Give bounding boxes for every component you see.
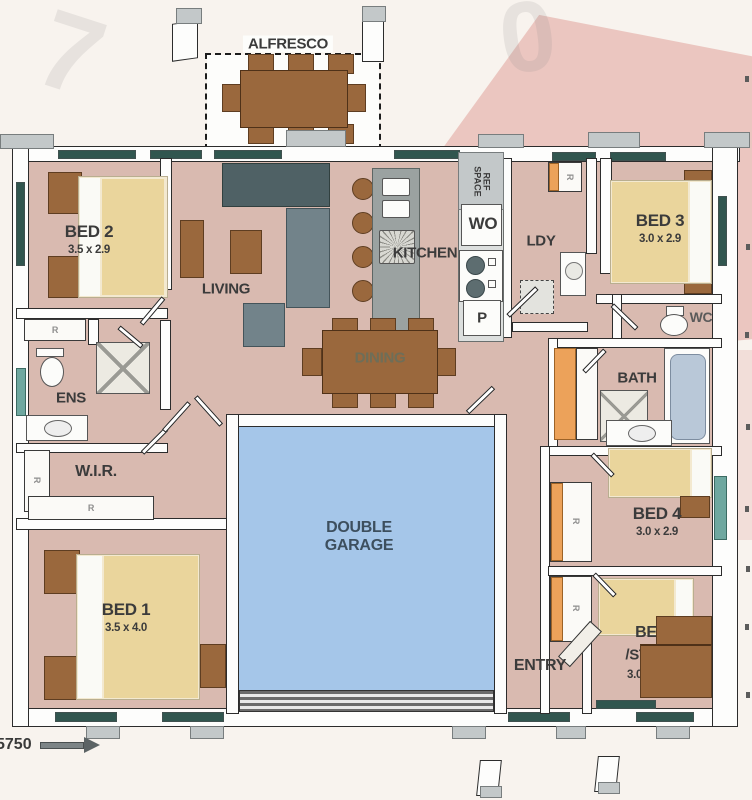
bed4-nightstand <box>680 496 710 518</box>
ens-basin <box>44 420 72 437</box>
window-bed4-right <box>714 476 727 540</box>
window-bed3-top <box>610 152 666 161</box>
scan-dot <box>745 506 749 512</box>
cooktop-knob <box>488 258 496 266</box>
wc-label: WC <box>690 309 713 325</box>
wall-ens-east <box>160 320 171 410</box>
bed2-nightstand <box>48 256 82 298</box>
wir-label: W.I.R. <box>75 463 117 481</box>
kitchen-ref-space-label-wrap: REF SPACE <box>458 156 504 206</box>
scan-dot <box>745 332 749 338</box>
bed3-dims: 3.0 x 2.9 <box>639 233 681 245</box>
living-cabinet <box>180 220 204 278</box>
scan-dot <box>745 624 749 630</box>
dining-chair <box>302 348 322 376</box>
bed1-label: BED 1 <box>102 600 151 620</box>
bath-linen-cupboard <box>554 348 576 440</box>
ldy-label: LDY <box>526 233 555 250</box>
bed5-desk-return <box>640 644 712 698</box>
scan-dot <box>746 244 750 250</box>
living-coffee-table <box>230 230 262 274</box>
window-ens-left <box>16 368 26 416</box>
alfresco-post-cap <box>176 8 202 24</box>
window-sill <box>556 726 586 739</box>
kitchen-label: KITCHEN <box>393 245 458 262</box>
garage-label-line1: DOUBLE <box>326 519 392 537</box>
window-head <box>0 134 54 149</box>
dimension-arrow-shaft <box>40 742 84 749</box>
garage-door <box>239 690 494 712</box>
window-head <box>588 132 640 148</box>
dimension-marker: 5750 <box>0 736 100 754</box>
ldy-linen-orange <box>549 163 559 191</box>
alfresco-post <box>362 20 384 62</box>
scan-dot <box>746 424 750 430</box>
cooktop-knob <box>488 280 496 288</box>
wc-toilet <box>660 314 688 336</box>
bed4-label: BED 4 <box>633 504 682 524</box>
alfresco-post-cap <box>362 6 386 22</box>
bed4-pillows <box>692 450 710 496</box>
window-living-top <box>150 150 202 159</box>
garage-label-line2: GARAGE <box>325 537 393 555</box>
cooktop-burner <box>466 256 485 275</box>
dimension-value: 5750 <box>0 736 32 754</box>
ens-shower <box>96 342 150 394</box>
entry-label: ENTRY <box>514 657 566 675</box>
alfresco-label: ALFRESCO <box>243 36 333 53</box>
window-head <box>704 132 750 148</box>
wall-bed4-south <box>548 566 722 576</box>
window-bed3-right <box>718 196 727 266</box>
alfresco-chair <box>346 84 366 112</box>
bed1-dresser <box>200 644 226 688</box>
garage-floor <box>237 425 496 711</box>
window-bed1-bottom <box>55 712 117 722</box>
wall-garage-north <box>226 414 507 427</box>
bed5-robe-label: R <box>571 605 581 611</box>
bed2-robe-label: R <box>52 325 58 335</box>
dimension-arrow-icon <box>84 737 100 753</box>
cooktop-burner <box>466 279 485 298</box>
living-armchair <box>243 303 285 347</box>
wall-oven-label: WO <box>469 214 498 234</box>
window-bed2-top <box>58 150 136 159</box>
ens-toilet <box>40 357 64 387</box>
scan-dot <box>746 692 750 698</box>
kitchen-stool <box>352 246 374 268</box>
alfresco-post <box>172 20 198 62</box>
bed2-label: BED 2 <box>65 222 114 242</box>
wall-garage-east <box>494 414 507 714</box>
wall-wc-south <box>548 338 722 348</box>
bed3-blanket <box>612 182 688 282</box>
bed1-nightstand <box>44 550 80 594</box>
bed5-robe-orange <box>551 577 563 641</box>
wall-ldy-south <box>512 322 588 332</box>
ldy-tub-bowl <box>565 262 583 280</box>
bed4-robe-label: R <box>571 518 581 524</box>
scan-dot <box>746 566 750 572</box>
alfresco-chair <box>222 84 242 112</box>
wall-garage-west <box>226 414 239 714</box>
window-bed2-left <box>16 182 25 266</box>
window-bed1-bottom2 <box>162 712 224 722</box>
kitchen-stool <box>352 178 374 200</box>
wall-ldy-east <box>586 158 597 254</box>
window-head <box>286 130 346 147</box>
kitchen-sink-bowl <box>382 178 410 196</box>
window-living-top2 <box>214 150 282 159</box>
window-bed5-bottom <box>636 712 694 722</box>
window-sill <box>190 726 224 739</box>
dining-label: DINING <box>355 350 406 367</box>
watermark-glyph-7: 7 <box>22 0 119 123</box>
window-sill <box>656 726 690 739</box>
ens-label: ENS <box>56 390 86 407</box>
window-entry-bottom <box>508 712 570 722</box>
bed5-desk <box>656 616 712 646</box>
ref-space-label: REF SPACE <box>472 164 491 198</box>
window-head <box>478 134 524 148</box>
bed2-nightstand <box>48 172 82 214</box>
bed1-nightstand <box>44 656 80 700</box>
bath-label: BATH <box>617 370 656 387</box>
ens-cistern <box>36 348 64 357</box>
bath-tub <box>670 354 706 440</box>
bath-basin <box>628 425 656 442</box>
entry-porch-tiles <box>596 700 656 709</box>
living-label: LIVING <box>202 281 250 298</box>
wir-robe-label2: R <box>88 503 94 513</box>
bed1-pillows <box>78 556 102 698</box>
kitchen-stool <box>352 212 374 234</box>
porch-post-cap <box>598 782 620 794</box>
bed1-dims: 3.5 x 4.0 <box>105 622 147 634</box>
living-tv-unit <box>222 163 330 207</box>
window-sill <box>452 726 486 739</box>
bed4-dims: 3.0 x 2.9 <box>636 526 678 538</box>
bed4-robe-orange <box>551 483 563 561</box>
kitchen-stool <box>352 280 374 302</box>
alfresco-table <box>240 70 348 128</box>
wir-robe-label: R <box>32 477 42 483</box>
bed3-label: BED 3 <box>636 211 685 231</box>
porch-post-cap <box>480 786 502 798</box>
bed2-dims: 3.5 x 2.9 <box>68 244 110 256</box>
ldy-robe-label: R <box>565 174 575 180</box>
bed3-pillows <box>690 182 710 282</box>
bed4-blanket <box>610 450 690 496</box>
window-kitchen-top <box>394 150 460 159</box>
living-sofa <box>286 208 330 308</box>
dining-chair <box>436 348 456 376</box>
kitchen-sink-bowl <box>382 200 410 218</box>
scan-dot <box>745 76 749 82</box>
pantry-label: P <box>477 310 487 327</box>
floor-plan-scan: 7 0 ◣ ALFRESCO <box>0 0 752 800</box>
